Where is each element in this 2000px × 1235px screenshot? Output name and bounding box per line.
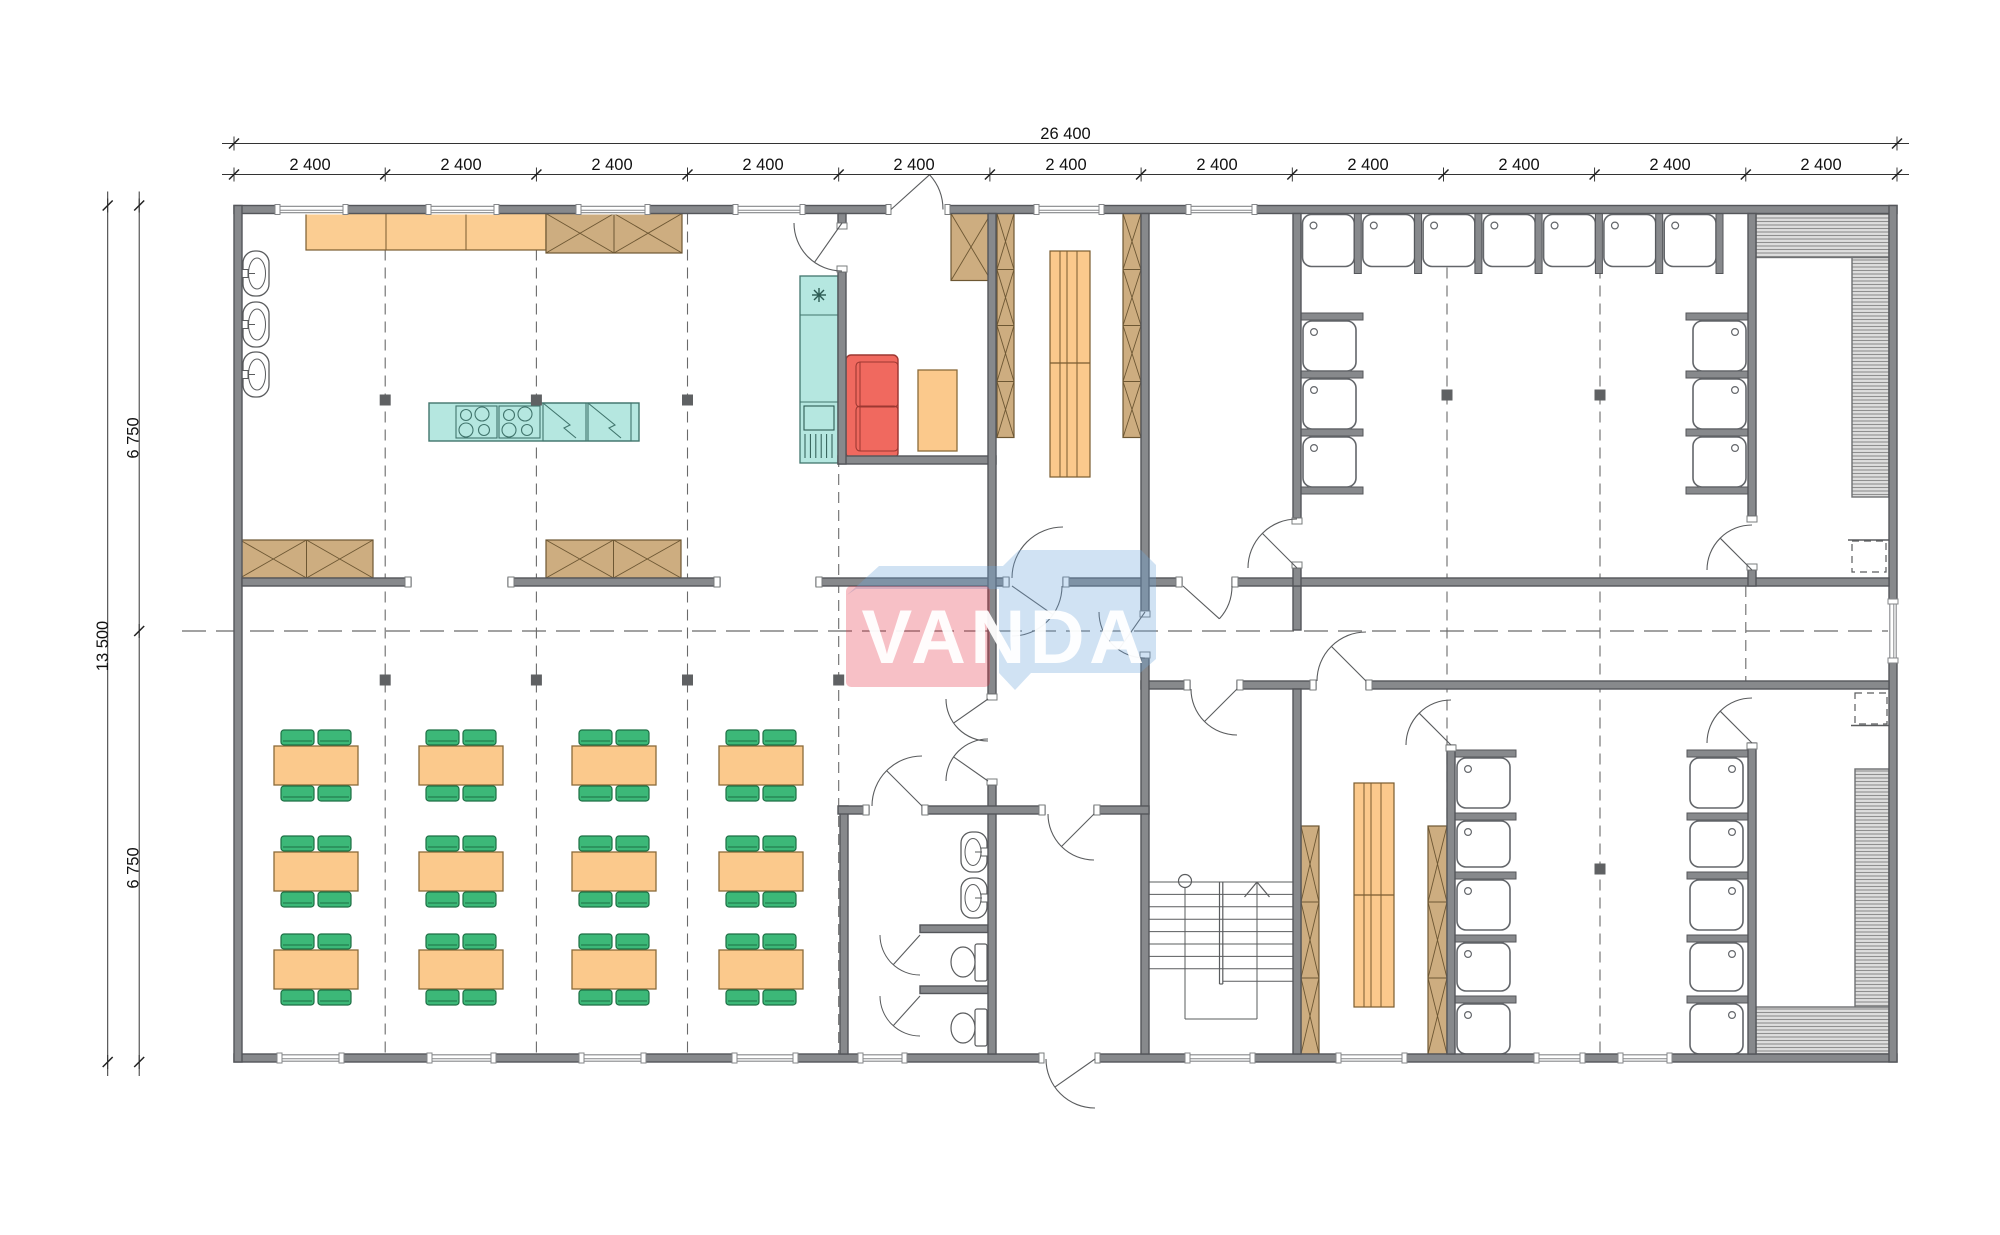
svg-text:2 400: 2 400 [1045,156,1086,174]
svg-text:2 400: 2 400 [1347,156,1388,174]
svg-text:2 400: 2 400 [742,156,783,174]
svg-text:2 400: 2 400 [289,156,330,174]
svg-text:VANDA: VANDA [861,595,1148,680]
svg-text:2 400: 2 400 [1800,156,1841,174]
svg-text:2 400: 2 400 [1649,156,1690,174]
svg-text:6 750: 6 750 [125,847,143,888]
svg-text:13 500: 13 500 [94,621,112,671]
svg-text:2 400: 2 400 [440,156,481,174]
svg-text:26 400: 26 400 [1040,125,1090,143]
svg-text:2 400: 2 400 [1196,156,1237,174]
svg-text:2 400: 2 400 [1498,156,1539,174]
svg-text:2 400: 2 400 [591,156,632,174]
svg-text:2 400: 2 400 [893,156,934,174]
svg-text:6 750: 6 750 [125,417,143,458]
